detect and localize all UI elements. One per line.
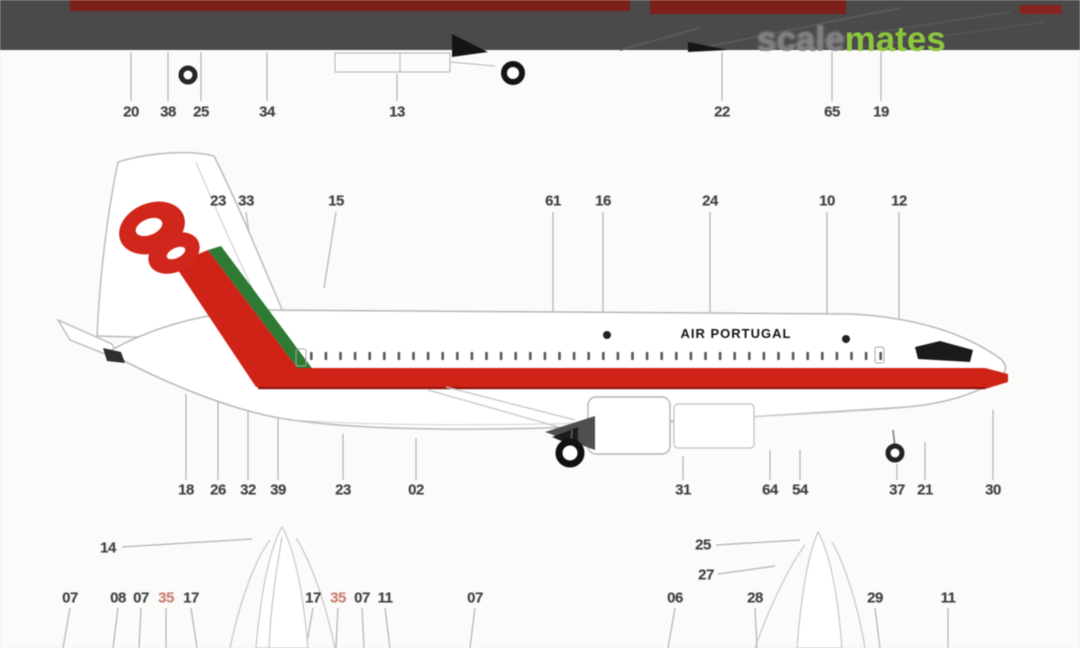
callout-number: 17 [305, 590, 321, 607]
callout-number: 21 [917, 482, 933, 499]
callout-number: 65 [824, 104, 840, 121]
airline-title: AIR PORTUGAL [655, 326, 817, 341]
decal-instruction-sheet: AIR PORTUGAL 203825341322651923331561162… [0, 0, 1080, 648]
marker-dot [603, 331, 611, 339]
callout-number: 29 [867, 590, 883, 607]
callout-number: 24 [702, 193, 718, 210]
watermark-scale-text: scale [757, 20, 845, 59]
aircraft-profile-diagram [0, 0, 1080, 648]
callout-number: 02 [408, 482, 424, 499]
callout-number: 10 [819, 193, 835, 210]
callout-number: 35 [158, 590, 174, 607]
callout-number: 34 [259, 104, 275, 121]
scalemates-watermark: scalemates [757, 22, 946, 57]
callout-number: 31 [675, 482, 691, 499]
aircraft-side-profile [58, 153, 1008, 464]
callout-number: 20 [123, 104, 139, 121]
callout-number: 16 [595, 193, 611, 210]
nose-gear-wheel-icon [888, 446, 902, 460]
callout-number: 38 [160, 104, 176, 121]
callout-number: 35 [330, 590, 346, 607]
bottom-fin-outline-right [755, 532, 865, 648]
callout-number: 39 [270, 482, 286, 499]
callout-number: 26 [210, 482, 226, 499]
marker-dot [842, 335, 850, 343]
callout-number: 11 [941, 590, 956, 607]
callout-number: 07 [467, 590, 483, 607]
callout-number: 17 [183, 590, 199, 607]
callout-number: 07 [354, 590, 370, 607]
callout-number: 06 [667, 590, 683, 607]
callout-number: 27 [698, 567, 714, 584]
bottom-fin-outline-left [230, 527, 335, 648]
callout-number: 61 [545, 193, 561, 210]
callout-number: 54 [792, 482, 808, 499]
cheatline [258, 368, 1008, 389]
callout-number: 23 [210, 193, 226, 210]
callout-number: 37 [889, 482, 905, 499]
callout-number: 11 [378, 590, 393, 607]
gear-wheel-icon [504, 64, 522, 82]
callout-number: 64 [762, 482, 778, 499]
callout-number: 33 [238, 193, 254, 210]
callout-number: 25 [193, 104, 209, 121]
callout-number: 12 [891, 193, 907, 210]
callout-number: 32 [240, 482, 256, 499]
callout-number: 07 [133, 590, 149, 607]
callout-number: 07 [62, 590, 78, 607]
callout-number: 30 [985, 482, 1001, 499]
callout-number: 25 [695, 537, 711, 554]
callout-number: 22 [714, 104, 730, 121]
callout-number: 28 [747, 590, 763, 607]
gear-wheel-icon [181, 68, 195, 82]
callout-number: 13 [389, 104, 405, 121]
callout-number: 23 [335, 482, 351, 499]
watermark-mates-text: mates [845, 20, 946, 59]
callout-number: 08 [110, 590, 126, 607]
main-gear-wheel-icon [559, 442, 581, 464]
callout-number: 15 [328, 193, 344, 210]
callout-number: 19 [873, 104, 889, 121]
callout-number: 18 [178, 482, 194, 499]
callout-number: 14 [100, 540, 116, 557]
